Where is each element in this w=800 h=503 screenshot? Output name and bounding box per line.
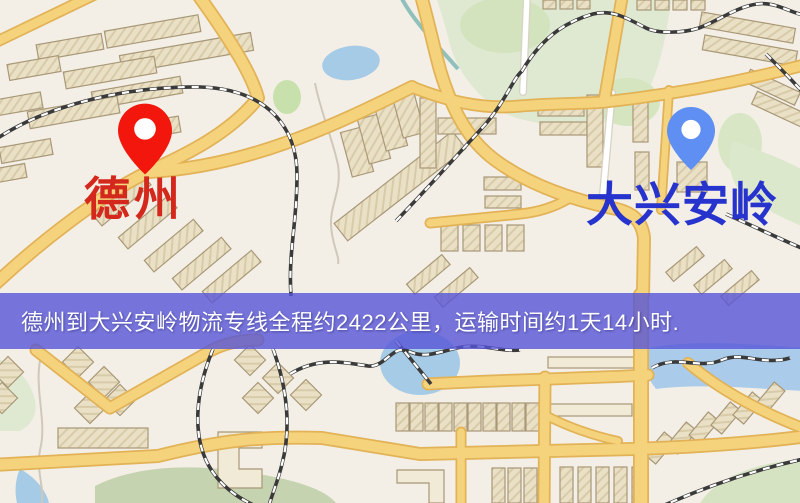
blue-location-pin-icon <box>667 105 715 172</box>
red-location-pin-icon <box>118 103 172 175</box>
destination-label: 大兴安岭 <box>586 183 778 230</box>
route-info-banner: 德州到大兴安岭物流专线全程约2422公里，运输时间约1天14小时. <box>0 293 800 349</box>
logistics-route-map: 德州 大兴安岭 德州到大兴安岭物流专线全程约2422公里，运输时间约1天14小时… <box>0 0 800 503</box>
destination-marker[interactable] <box>667 105 715 172</box>
origin-marker[interactable] <box>118 103 172 175</box>
route-info-text: 德州到大兴安岭物流专线全程约2422公里，运输时间约1天14小时. <box>0 305 679 337</box>
map-canvas <box>0 0 800 503</box>
origin-label: 德州 <box>84 177 184 223</box>
